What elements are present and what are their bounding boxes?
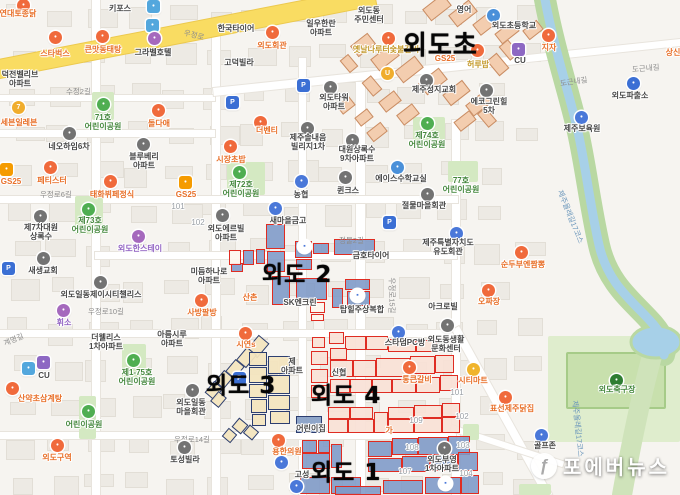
town-hall-icon[interactable]: • xyxy=(186,384,199,397)
poi-label-line: 시장초밥 xyxy=(216,155,245,164)
highlight-parcel-pink xyxy=(353,360,376,377)
poi-label[interactable]: 외도일동마을회관 xyxy=(176,398,205,416)
poi-label[interactable]: 제주보육원 xyxy=(564,124,601,133)
highlight-parcel-cream xyxy=(252,414,266,426)
poi-label[interactable]: 101 xyxy=(171,202,184,211)
restaurant-icon[interactable]: • xyxy=(403,361,416,374)
poi-label-line: 휘소 xyxy=(57,318,72,327)
poi-label-line: SK엔크린 xyxy=(283,298,316,307)
poi-label[interactable]: 외도에르빌아파트 xyxy=(208,224,245,242)
restaurant-icon[interactable]: • xyxy=(44,161,57,174)
building-marker-icon[interactable]: ▪ xyxy=(439,477,452,490)
poi-label[interactable]: 세븐일레븐 xyxy=(1,118,38,127)
poi-label-line: 연대토종닭 xyxy=(0,9,36,18)
gs25-icon[interactable]: • xyxy=(179,176,192,189)
poi-label[interactable]: 아름시루아파트 xyxy=(157,330,186,348)
poi-label[interactable]: 산촌 xyxy=(243,293,258,302)
poi-label[interactable]: 표선제주닭집 xyxy=(490,404,534,413)
poi-label-line: 외도초등학교 xyxy=(492,21,536,30)
poi-label-line: 키포스 xyxy=(109,4,131,13)
poi-label[interactable]: 101 xyxy=(450,388,463,397)
park-icon[interactable]: • xyxy=(233,166,246,179)
poi-label[interactable]: 102 xyxy=(455,412,468,421)
poi-label-line: 77호 xyxy=(443,176,480,185)
poi-label[interactable]: 시티마트 xyxy=(458,376,487,385)
store-icon[interactable]: • xyxy=(57,304,70,317)
poi-label-line: 그라벨호텔 xyxy=(135,48,172,57)
poi-label-line: 덕전벨리브 xyxy=(2,70,39,79)
city-block xyxy=(164,280,189,294)
poi-label[interactable]: 한국타이어 xyxy=(218,24,255,33)
poi-label-line: GS25 xyxy=(1,177,21,186)
poi-label-line: 어린이공원 xyxy=(443,185,480,194)
poi-label[interactable]: 상신 xyxy=(666,48,680,57)
watermark-text: 포에버뉴스 xyxy=(563,451,670,480)
poi-label[interactable]: 고덕빌라 xyxy=(224,58,253,67)
poi-label-line: 아파트 xyxy=(306,28,335,37)
poi-label-line: 제74호 xyxy=(409,131,446,140)
park-icon[interactable]: • xyxy=(421,117,434,130)
district-label-3: 외도 3 xyxy=(206,366,276,400)
poi-label[interactable]: 금호타이어 xyxy=(353,251,390,260)
poi-label-line: 문화센터 xyxy=(428,344,465,353)
poi-label[interactable]: 통큰갈비 xyxy=(402,375,431,384)
restaurant-icon[interactable]: • xyxy=(515,246,528,259)
poi-label[interactable]: 시연s xyxy=(236,340,255,349)
highlight-parcel-pale xyxy=(229,250,241,265)
parking-icon[interactable]: P xyxy=(383,216,396,229)
city-block xyxy=(248,475,274,490)
city-block xyxy=(13,478,33,495)
park-area xyxy=(519,484,551,495)
watermark: ƒ 포에버뉴스 xyxy=(531,451,670,480)
poi-label-line: 사방팔방 xyxy=(187,308,216,317)
restaurant-icon[interactable]: • xyxy=(104,175,117,188)
poi-label[interactable]: 아크로빌 xyxy=(428,302,457,311)
city-block xyxy=(399,277,430,299)
poi-label-line: 어린이공원 xyxy=(223,189,260,198)
poi-label-line: 어린이공원 xyxy=(66,420,103,429)
poi-label-line: 외도동 xyxy=(354,6,383,15)
poi-label-line: 제주보육원 xyxy=(564,124,601,133)
poi-label-line: 탑힐주상복합 xyxy=(340,305,384,314)
poi-label-line: 산약초삼계탕 xyxy=(18,394,62,403)
seven-eleven-icon[interactable]: 7 xyxy=(12,101,25,114)
poi-label-line: 101 xyxy=(450,388,463,397)
building xyxy=(340,54,359,73)
clinic-icon[interactable]: • xyxy=(272,434,285,447)
city-block xyxy=(325,205,352,227)
bus-stop-icon[interactable]: • xyxy=(147,0,160,13)
poi-label-line: 104 xyxy=(459,469,472,478)
highlight-parcel-blue1 xyxy=(335,486,381,495)
poi-label[interactable]: 외도동주민센터 xyxy=(354,6,383,24)
kindergarten-icon[interactable]: U xyxy=(381,67,394,80)
poi-label[interactable]: 어린이집 xyxy=(296,424,325,433)
poi-label[interactable]: 제1-75호어린이공원 xyxy=(119,368,156,386)
city-block xyxy=(170,5,198,20)
city-block xyxy=(10,402,36,415)
poi-label-line: 107 xyxy=(398,467,411,476)
poi-label-line: 외도동생활 xyxy=(428,335,465,344)
poi-label-line: 제주솔내음 xyxy=(290,133,327,142)
poi-label[interactable]: 네오하임6차 xyxy=(48,142,89,151)
district-label-1: 외도초 xyxy=(403,25,478,62)
poi-label-line: 돌다애 xyxy=(148,119,170,128)
poi-label[interactable]: 블루베리아파트 xyxy=(129,152,158,170)
poi-label-line: 일우한란 xyxy=(306,19,335,28)
road-label: 정물2길 xyxy=(339,235,364,246)
culture-center-icon[interactable]: • xyxy=(441,319,454,332)
city-block xyxy=(366,203,386,218)
poi-label[interactable]: 탑힐주상복합 xyxy=(340,305,384,314)
poi-label-line: 가 xyxy=(385,426,392,435)
highlight-parcel-blue xyxy=(266,224,285,249)
poi-label-line: 더벤티 xyxy=(256,126,278,135)
poi-label[interactable]: 절물마을회관 xyxy=(402,201,446,210)
poi-label[interactable]: 107 xyxy=(398,467,411,476)
road-label: 수정2길 xyxy=(66,86,91,97)
poi-label-line: 더웰리스 xyxy=(89,333,123,342)
poi-label-line: 상신 xyxy=(666,48,680,57)
poi-label-line: 상록수 xyxy=(24,232,58,241)
church-icon[interactable]: • xyxy=(37,252,50,265)
poi-label[interactable]: 영어 xyxy=(457,5,472,14)
poi-label-line: 아름시루 xyxy=(157,330,186,339)
poi-label[interactable]: 농협 xyxy=(294,190,309,199)
poi-label-line: 외도일동제이시티챌리스 xyxy=(61,290,142,299)
parking-icon[interactable]: P xyxy=(2,262,15,275)
poi-label[interactable]: 외도부영1차아파트 xyxy=(425,455,459,473)
building-marker-icon[interactable]: ▪ xyxy=(298,240,311,253)
poi-label-line: 외도파출소 xyxy=(612,91,649,100)
poi-label[interactable]: 103 xyxy=(456,441,469,450)
hall-icon[interactable]: • xyxy=(421,188,434,201)
poi-label[interactable]: 새생교회 xyxy=(28,266,57,275)
restaurant-icon[interactable]: • xyxy=(382,32,395,45)
poi-label[interactable]: 더웰리스1차아파트 xyxy=(89,333,123,351)
highlight-parcel-cream xyxy=(251,399,267,413)
restaurant-icon[interactable]: • xyxy=(542,29,555,42)
poi-label-line: 통큰갈비 xyxy=(402,375,431,384)
poi-label[interactable]: 일우한란아파트 xyxy=(306,19,335,37)
poi-label-line: 유도회관 xyxy=(422,247,474,256)
poi-label[interactable]: 순두부엔짬뽕 xyxy=(501,260,545,269)
poi-label[interactable]: 산약초삼계탕 xyxy=(18,394,62,403)
road-label: 도근내길 xyxy=(559,74,588,89)
poi-label-line: 태화뷔페정식 xyxy=(90,190,134,199)
poi-label[interactable]: 용한의원 xyxy=(272,447,301,456)
poi-label[interactable]: 102 xyxy=(191,218,204,227)
poi-label[interactable]: 오짜장 xyxy=(478,297,500,306)
poi-label[interactable]: 제주특별자치도유도회관 xyxy=(422,238,474,256)
city-block xyxy=(55,362,83,381)
poi-label[interactable]: 71호어린이공원 xyxy=(85,113,122,131)
poi-label[interactable]: 제74호어린이공원 xyxy=(409,131,446,149)
poi-label[interactable]: 가 xyxy=(385,426,392,435)
poi-label[interactable]: 제아파트 xyxy=(281,357,303,375)
bank-icon[interactable]: • xyxy=(295,175,308,188)
poi-label-line: 빌리지1차 xyxy=(290,142,327,151)
highlight-parcel-pink xyxy=(348,419,374,433)
poi-label[interactable]: CU xyxy=(514,56,526,65)
poi-label[interactable]: 지자 xyxy=(542,43,557,52)
poi-label[interactable]: 페티스터 xyxy=(37,176,66,185)
zone-icon[interactable]: • xyxy=(51,439,64,452)
poi-label-line: 영어 xyxy=(457,5,472,14)
poi-label[interactable]: 대원상록수9차아파트 xyxy=(339,145,376,163)
public-icon[interactable]: • xyxy=(575,111,588,124)
road-label: 도근내길 xyxy=(632,62,660,75)
public-icon[interactable]: • xyxy=(290,480,303,493)
park-icon[interactable]: • xyxy=(82,405,95,418)
restaurant-icon[interactable]: • xyxy=(499,391,512,404)
poi-label[interactable]: 토성빌라 xyxy=(170,455,199,464)
poi-label[interactable]: 외도한스테이 xyxy=(118,244,162,253)
poi-label[interactable]: 더벤티 xyxy=(256,126,278,135)
academy-icon[interactable]: • xyxy=(391,161,404,174)
city-block xyxy=(45,239,76,257)
poi-label[interactable]: 그라벨호텔 xyxy=(135,48,172,57)
restaurant-icon[interactable]: • xyxy=(195,294,208,307)
poi-label-line: 제주특별자치도 xyxy=(422,238,474,247)
poi-label[interactable]: 외도회관 xyxy=(257,41,286,50)
poi-label[interactable]: 108 xyxy=(405,443,418,452)
poi-label[interactable]: 태화뷔페정식 xyxy=(90,190,134,199)
cafe-icon[interactable]: • xyxy=(49,31,62,44)
poi-label-line: 고성 xyxy=(295,470,310,479)
poi-label[interactable]: 스타벅스 xyxy=(40,49,69,58)
poi-label[interactable]: 연대토종닭 xyxy=(0,9,36,18)
poi-label-line: 외도부영 xyxy=(425,455,459,464)
villa-icon[interactable]: • xyxy=(178,441,191,454)
cu-store-icon[interactable]: • xyxy=(512,43,525,56)
poi-label[interactable]: 77호어린이공원 xyxy=(443,176,480,194)
poi-label-line: 새생교회 xyxy=(28,266,57,275)
poi-label-line: 제72호 xyxy=(223,180,260,189)
park-icon[interactable]: • xyxy=(97,98,110,111)
poi-label-line: 토성빌라 xyxy=(170,455,199,464)
poi-label-line: 골프존 xyxy=(534,441,556,450)
building-marker-icon[interactable]: ▪ xyxy=(351,289,364,302)
hotel-icon[interactable]: • xyxy=(148,32,161,45)
parking-icon[interactable]: P xyxy=(297,79,310,92)
bus-stop-icon[interactable]: • xyxy=(146,19,159,32)
poi-label-line: 대원상록수 xyxy=(339,145,376,154)
poi-label-line: 102 xyxy=(455,412,468,421)
poi-label-line: 1차아파트 xyxy=(89,342,123,351)
poi-label[interactable]: 외도동생활문화센터 xyxy=(428,335,465,353)
restaurant-icon[interactable]: • xyxy=(239,327,252,340)
poi-label-line: 오짜장 xyxy=(478,297,500,306)
poi-label[interactable]: 제72호어린이공원 xyxy=(223,180,260,198)
city-block xyxy=(131,206,157,223)
poi-label[interactable]: 고성 xyxy=(295,470,310,479)
road-label: 우정로6길 xyxy=(40,189,72,200)
poi-label-line: 외도에르빌 xyxy=(208,224,245,233)
poi-label[interactable]: 외도축구장 xyxy=(599,385,636,394)
poi-label-line: 어린이공원 xyxy=(85,122,122,131)
poi-label-line: 아크로빌 xyxy=(428,302,457,311)
city-block xyxy=(124,168,147,188)
city-block xyxy=(11,279,40,301)
restaurant-icon[interactable]: • xyxy=(96,30,109,43)
highlight-parcel-pink xyxy=(330,348,347,360)
city-block xyxy=(167,356,198,374)
poi-label[interactable]: 스타덤PC방 xyxy=(385,338,426,347)
poi-label[interactable]: 109 xyxy=(409,416,422,425)
city-block xyxy=(15,241,41,256)
poi-label[interactable]: 골프존 xyxy=(534,441,556,450)
mart-icon[interactable]: • xyxy=(467,363,480,376)
poi-label-line: 제주성지교회 xyxy=(412,85,456,94)
highlight-parcel-pink xyxy=(329,332,344,344)
poi-label[interactable]: CU xyxy=(38,371,50,380)
poi-label-line: 페티스터 xyxy=(37,176,66,185)
poi-label[interactable]: 제주솔내음빌리지1차 xyxy=(290,133,327,151)
poi-label-line: 산촌 xyxy=(243,293,258,302)
poi-label-line: 지자 xyxy=(542,43,557,52)
apartment-icon[interactable]: • xyxy=(480,84,493,97)
restaurant-icon[interactable]: • xyxy=(482,284,495,297)
poi-label-line: 미듬하나로 xyxy=(191,267,228,276)
restaurant-icon[interactable]: • xyxy=(266,26,279,39)
park-icon[interactable]: • xyxy=(127,354,140,367)
poi-label-line: 금호타이어 xyxy=(353,251,390,260)
city-block xyxy=(47,11,72,27)
poi-label-line: 어린이집 xyxy=(296,424,325,433)
cu-store-icon[interactable]: • xyxy=(37,356,50,369)
highlight-parcel-blue1 xyxy=(383,480,423,494)
district-label-5: 외도 1 xyxy=(311,453,381,487)
poi-label[interactable]: 제7차대원상록수 xyxy=(24,223,58,241)
poi-label-line: 농협 xyxy=(294,190,309,199)
city-block xyxy=(474,244,500,265)
city-block xyxy=(518,318,543,336)
bus-stop-icon[interactable]: • xyxy=(22,362,35,375)
gs25-icon[interactable]: • xyxy=(0,163,13,176)
apartment-icon[interactable]: • xyxy=(63,127,76,140)
apartment-icon[interactable]: • xyxy=(216,209,229,222)
city-block xyxy=(405,11,427,24)
poi-label-line: 아파트 xyxy=(129,161,158,170)
highlight-parcel-blue1 xyxy=(318,440,330,453)
poi-label[interactable]: GS25 xyxy=(176,190,196,199)
poi-label-line: 제7차대원 xyxy=(24,223,58,232)
poi-label[interactable]: 에이스수학교실 xyxy=(375,174,427,183)
apartment-icon[interactable]: • xyxy=(438,442,451,455)
police-icon[interactable]: • xyxy=(627,77,640,90)
poi-label-line: 새마을금고 xyxy=(270,216,307,225)
city-block xyxy=(514,356,542,371)
poi-label[interactable]: 에코그린힐5차 xyxy=(471,97,508,115)
city-block xyxy=(516,128,538,141)
poi-label[interactable]: GS25 xyxy=(1,177,21,186)
poi-label-line: 109 xyxy=(409,416,422,425)
poi-label[interactable]: 사방팔방 xyxy=(187,308,216,317)
poi-label-line: 스타덤PC방 xyxy=(385,338,426,347)
poi-label-line: 시연s xyxy=(236,340,255,349)
city-block xyxy=(125,472,148,488)
poi-label-line: 외도축구장 xyxy=(599,385,636,394)
poi-label-line: 9차아파트 xyxy=(339,154,376,163)
poi-label[interactable]: 미듬하나로아파트 xyxy=(191,267,228,285)
poi-label-line: 큰맛동태탕 xyxy=(85,45,122,54)
trail-label: 제주올레길17코스 xyxy=(555,188,586,245)
poi-label-line: 제 xyxy=(281,357,303,366)
poi-label[interactable]: 외도초등학교 xyxy=(492,21,536,30)
restaurant-icon[interactable]: • xyxy=(224,140,237,153)
pharmacy-icon[interactable]: • xyxy=(275,456,288,469)
poi-label-line: 마을회관 xyxy=(176,407,205,416)
poi-label-line: 어린이공원 xyxy=(119,377,156,386)
poi-label-line: 외도구역 xyxy=(42,453,71,462)
poi-label-line: 103 xyxy=(456,441,469,450)
poi-label[interactable]: 제73호어린이공원 xyxy=(72,216,109,234)
map-canvas[interactable]: 우정로수정2길우정로6길우정로10길우정로14길계명길정물2길도근내길도근내길우… xyxy=(0,0,680,495)
city-block xyxy=(6,440,35,460)
city-block xyxy=(166,479,194,495)
poi-label[interactable]: 시장초밥 xyxy=(216,155,245,164)
apartment-icon[interactable]: • xyxy=(34,210,47,223)
poi-label[interactable]: 외도타워아파트 xyxy=(319,93,348,111)
poi-label[interactable]: SK엔크린 xyxy=(283,298,316,307)
poi-label[interactable]: 덕전벨리브아파트 xyxy=(2,70,39,88)
highlight-parcel-cream xyxy=(270,411,290,424)
poi-label-line: 고덕빌라 xyxy=(224,58,253,67)
poi-label[interactable]: 새마을금고 xyxy=(270,216,307,225)
poi-label[interactable]: 외도구역 xyxy=(42,453,71,462)
poi-label-line: 5차 xyxy=(471,106,508,115)
poi-label[interactable]: 104 xyxy=(459,469,472,478)
poi-label-line: 시티마트 xyxy=(458,376,487,385)
poi-label[interactable]: 돌다애 xyxy=(148,119,170,128)
bank-icon[interactable]: • xyxy=(269,202,282,215)
poi-label-line: 네오하임6차 xyxy=(48,142,89,151)
apartment-icon[interactable]: • xyxy=(94,276,107,289)
city-block xyxy=(319,44,346,58)
poi-label[interactable]: 어린이공원 xyxy=(66,420,103,429)
road xyxy=(0,130,215,137)
poi-label-line: 1차아파트 xyxy=(425,464,459,473)
store-icon[interactable]: • xyxy=(339,171,352,184)
poi-label-line: 101 xyxy=(171,202,184,211)
poi-label-line: 용한의원 xyxy=(272,447,301,456)
highlight-parcel-pale xyxy=(311,314,324,321)
parking-icon[interactable]: P xyxy=(226,96,239,109)
poi-label[interactable]: 외도일동제이시티챌리스 xyxy=(61,290,142,299)
poi-label-line: 아파트 xyxy=(2,79,39,88)
poi-label[interactable]: 외도파출소 xyxy=(612,91,649,100)
road-label: 우정로10길 xyxy=(88,306,124,317)
hotel-icon[interactable]: • xyxy=(132,230,145,243)
poi-label[interactable]: 휘소 xyxy=(57,318,72,327)
restaurant-icon[interactable]: • xyxy=(152,104,165,117)
highlight-parcel-pink xyxy=(312,337,325,348)
highlight-parcel-blue1 xyxy=(302,440,317,453)
highlight-parcel-blue xyxy=(243,250,254,265)
poi-label[interactable]: 큰맛동태탕 xyxy=(85,45,122,54)
poi-label-line: 외도일동 xyxy=(176,398,205,407)
apartment-icon[interactable]: • xyxy=(137,138,150,151)
poi-label[interactable]: 제주성지교회 xyxy=(412,85,456,94)
poi-label[interactable]: 키포스 xyxy=(109,4,131,13)
poi-label-line: 어린이공원 xyxy=(409,140,446,149)
poi-label[interactable]: 퀸크스 xyxy=(337,186,359,195)
city-block xyxy=(54,476,79,495)
poi-label-line: 외도회관 xyxy=(257,41,286,50)
park-icon[interactable]: • xyxy=(82,203,95,216)
